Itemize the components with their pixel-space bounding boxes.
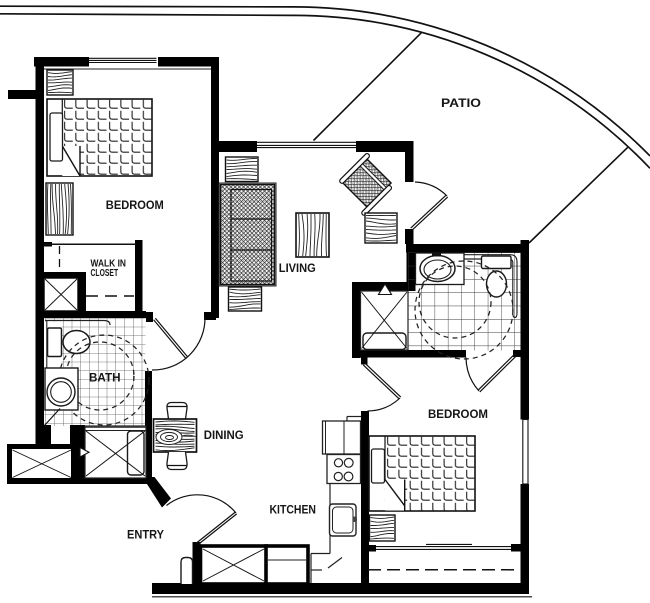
svg-text:BEDROOM: BEDROOM [106, 198, 164, 212]
svg-text:ENTRY: ENTRY [127, 528, 164, 542]
svg-text:KITCHEN: KITCHEN [270, 503, 317, 517]
svg-text:LIVING: LIVING [279, 261, 316, 275]
svg-text:BATH: BATH [89, 371, 121, 385]
svg-text:BEDROOM: BEDROOM [428, 407, 488, 421]
svg-text:DINING: DINING [204, 428, 244, 442]
svg-text:PATIO: PATIO [441, 96, 481, 110]
svg-text:CLOSET: CLOSET [91, 267, 119, 279]
